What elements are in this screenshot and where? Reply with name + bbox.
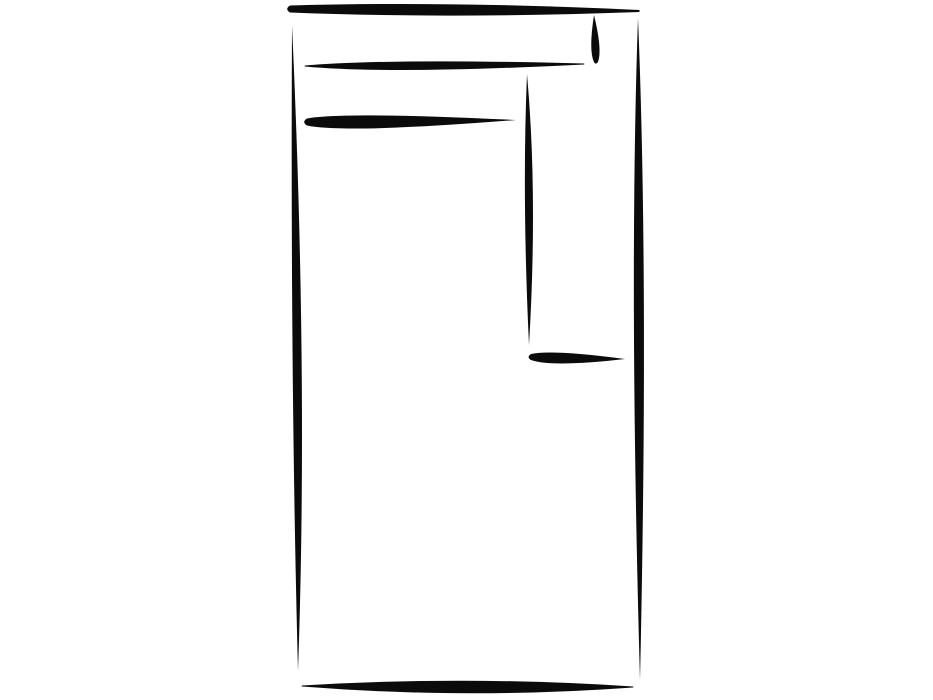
inner-seat-line-stroke <box>304 115 516 128</box>
right-edge-stroke <box>634 18 644 680</box>
top-edge-stroke <box>287 4 640 16</box>
inner-vertical-line-stroke <box>525 74 533 345</box>
mid-right-line-stroke <box>529 353 625 364</box>
top-right-tick-stroke <box>591 15 599 64</box>
inner-back-line-stroke <box>305 61 585 70</box>
bottom-edge-stroke <box>302 681 634 694</box>
drawing-canvas <box>0 0 933 700</box>
stroke-group <box>287 4 644 693</box>
left-edge-stroke <box>292 25 302 671</box>
brush-line-drawing <box>0 0 933 700</box>
